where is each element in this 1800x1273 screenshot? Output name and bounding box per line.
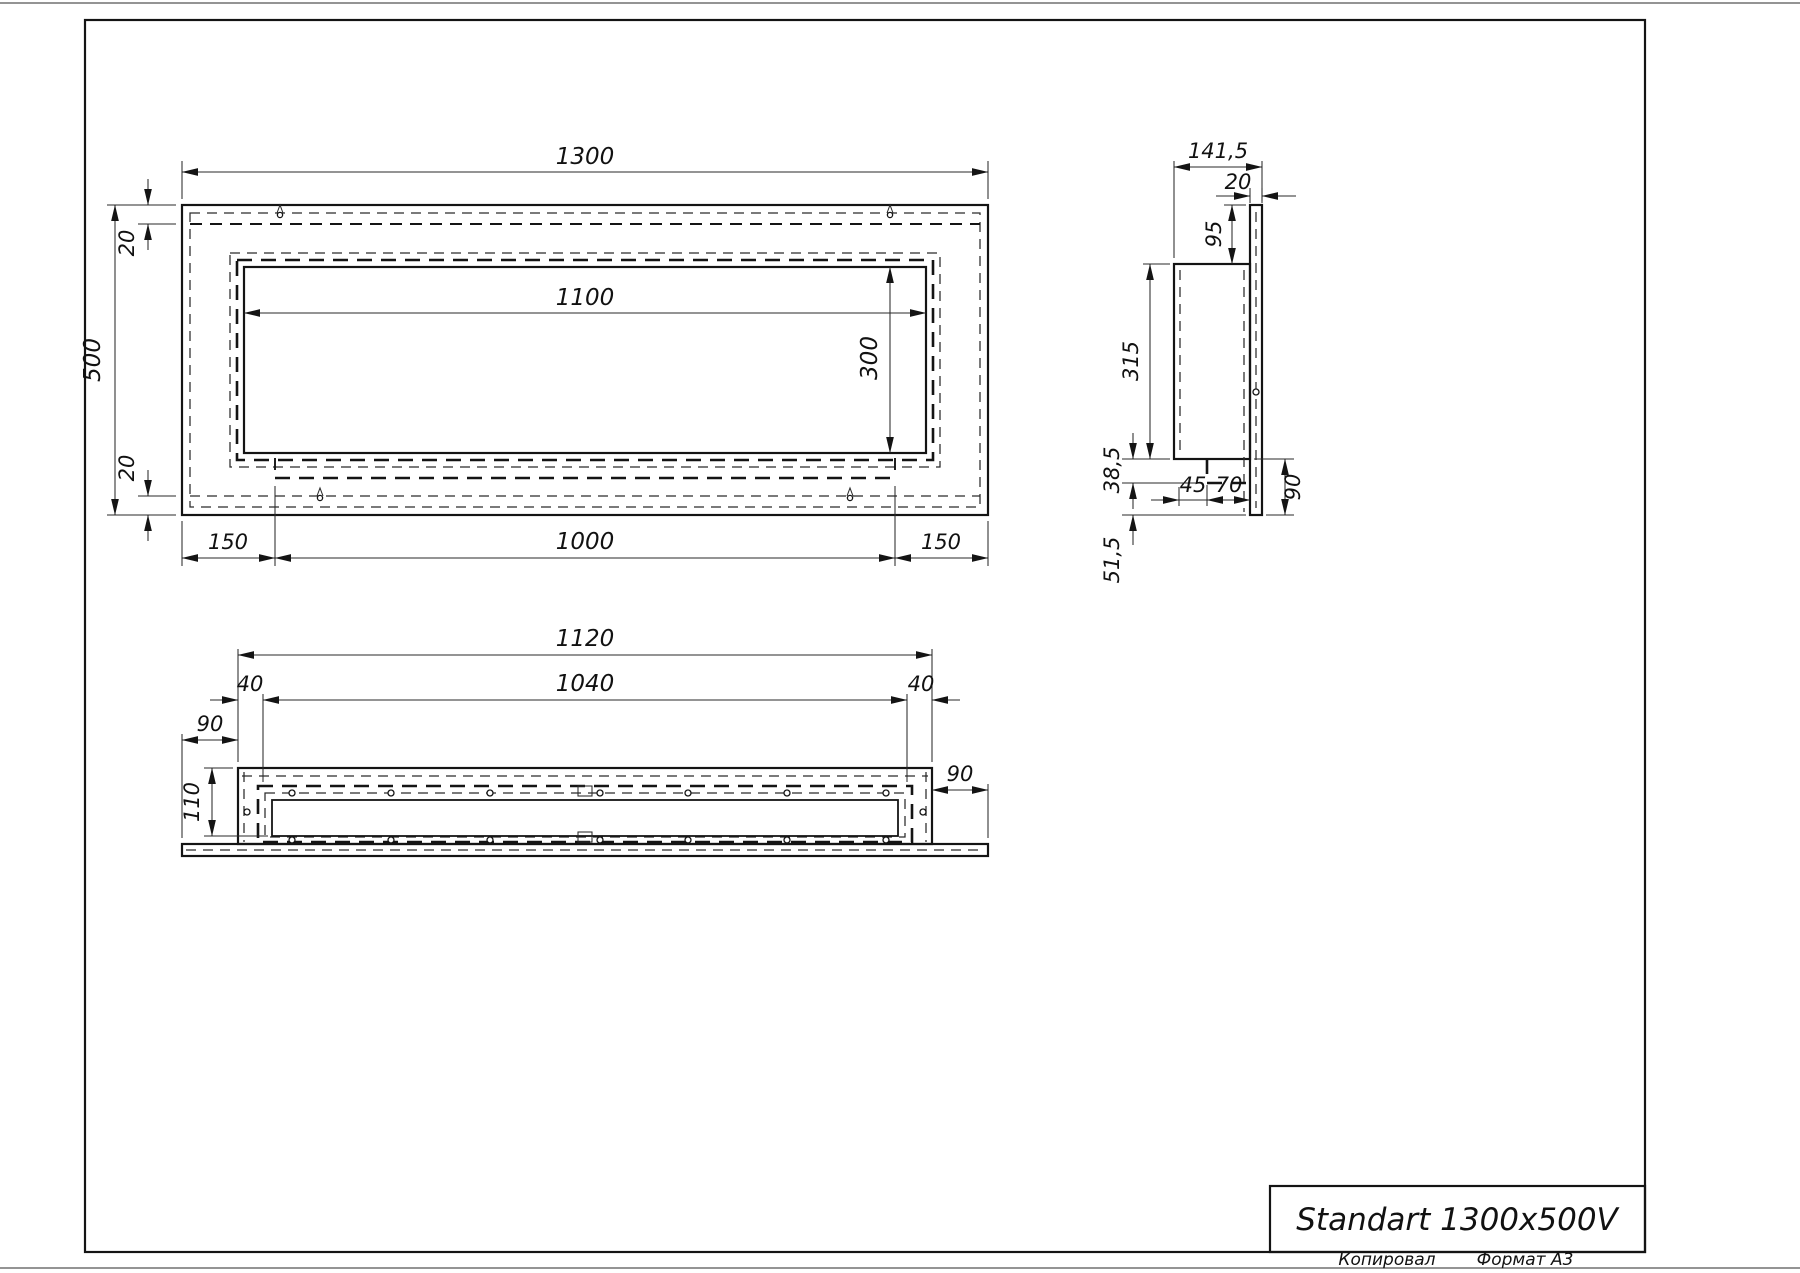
footer-format-label: Формат А3 — [1477, 1250, 1574, 1270]
drawing-sheet: Standart 1300x500V Копировал Формат А3 — [0, 0, 1800, 1273]
dim-label: 70 — [1216, 473, 1243, 497]
dim-label: 90 — [947, 762, 974, 786]
dim-label: 90 — [197, 712, 224, 736]
title-block: Standart 1300x500V Копировал Формат А3 — [1270, 1186, 1645, 1270]
dim-label: 150 — [208, 530, 248, 554]
dim-front-bottom-chain: 150 1000 150 — [182, 486, 988, 566]
side-body-rect — [1174, 264, 1250, 459]
dim-label: 51,5 — [1100, 537, 1124, 584]
bottom-opening-hidden-outer — [258, 786, 912, 842]
side-flange-hole — [1253, 389, 1259, 395]
dim-label: 141,5 — [1188, 139, 1248, 163]
keyhole-icon — [847, 495, 852, 500]
dim-side-shelf-height: 38,5 — [1100, 433, 1203, 509]
dim-label: 95 — [1202, 221, 1226, 248]
bottom-opening-rect — [272, 800, 898, 836]
drawing-title: Standart 1300x500V — [1296, 1202, 1620, 1238]
dim-label: 40 — [237, 672, 264, 696]
dim-label: 110 — [180, 782, 204, 822]
dim-label: 1120 — [556, 626, 615, 652]
dim-side-shelf-chain: 45 70 — [1151, 473, 1250, 506]
dim-side-body-height: 315 — [1119, 264, 1170, 459]
dim-front-opening-width: 1100 — [244, 285, 926, 313]
technical-drawing: Standart 1300x500V Копировал Формат А3 — [0, 0, 1800, 1273]
bottom-body-rect — [238, 768, 932, 844]
dim-front-overall-width: 1300 — [182, 144, 988, 199]
dim-label: 38,5 — [1100, 447, 1124, 494]
dim-label: 40 — [908, 672, 935, 696]
dim-bottom-opening-chain: 1040 40 40 — [210, 671, 960, 782]
front-keyhole-slots — [277, 205, 893, 501]
dim-label: 150 — [921, 530, 961, 554]
dim-label: 20 — [115, 230, 139, 257]
bottom-center-notch-top — [578, 786, 592, 796]
dim-front-opening-height: 300 — [857, 267, 890, 453]
dim-bottom-flange-ext-right: 90 — [932, 762, 988, 838]
page-frame — [0, 3, 1800, 1268]
dim-label: 500 — [80, 338, 106, 382]
bottom-view: 1120 1040 40 40 90 90 — [180, 626, 988, 856]
dim-label: 45 — [1180, 473, 1207, 497]
dim-label: 20 — [115, 455, 139, 482]
front-view: 1300 500 20 20 1100 — [80, 144, 988, 566]
footer-copied-label: Копировал — [1338, 1250, 1435, 1270]
dim-side-top-offset: 95 — [1202, 205, 1246, 264]
dim-bottom-body-depth: 110 — [180, 768, 268, 836]
keyhole-icon — [887, 212, 892, 217]
dim-label: 300 — [857, 336, 883, 380]
dim-side-flange-thickness: 20 — [1216, 170, 1296, 203]
dim-label: 315 — [1119, 341, 1143, 381]
side-view: 141,5 20 95 315 38,5 — [1100, 139, 1305, 583]
dim-label: 1040 — [556, 671, 615, 697]
dim-label: 20 — [1225, 170, 1252, 194]
dim-label: 90 — [1281, 474, 1305, 501]
bottom-mounting-holes — [244, 790, 926, 843]
dim-label: 1000 — [556, 529, 615, 555]
dim-front-bottom-offset: 20 — [115, 455, 176, 541]
dim-side-bottom-offset: 51,5 — [1100, 515, 1246, 583]
dim-label: 1300 — [556, 144, 615, 170]
keyhole-icon — [317, 495, 322, 500]
dim-label: 1100 — [556, 285, 615, 311]
keyhole-icon — [277, 212, 282, 217]
dim-front-top-offset: 20 — [115, 179, 176, 256]
